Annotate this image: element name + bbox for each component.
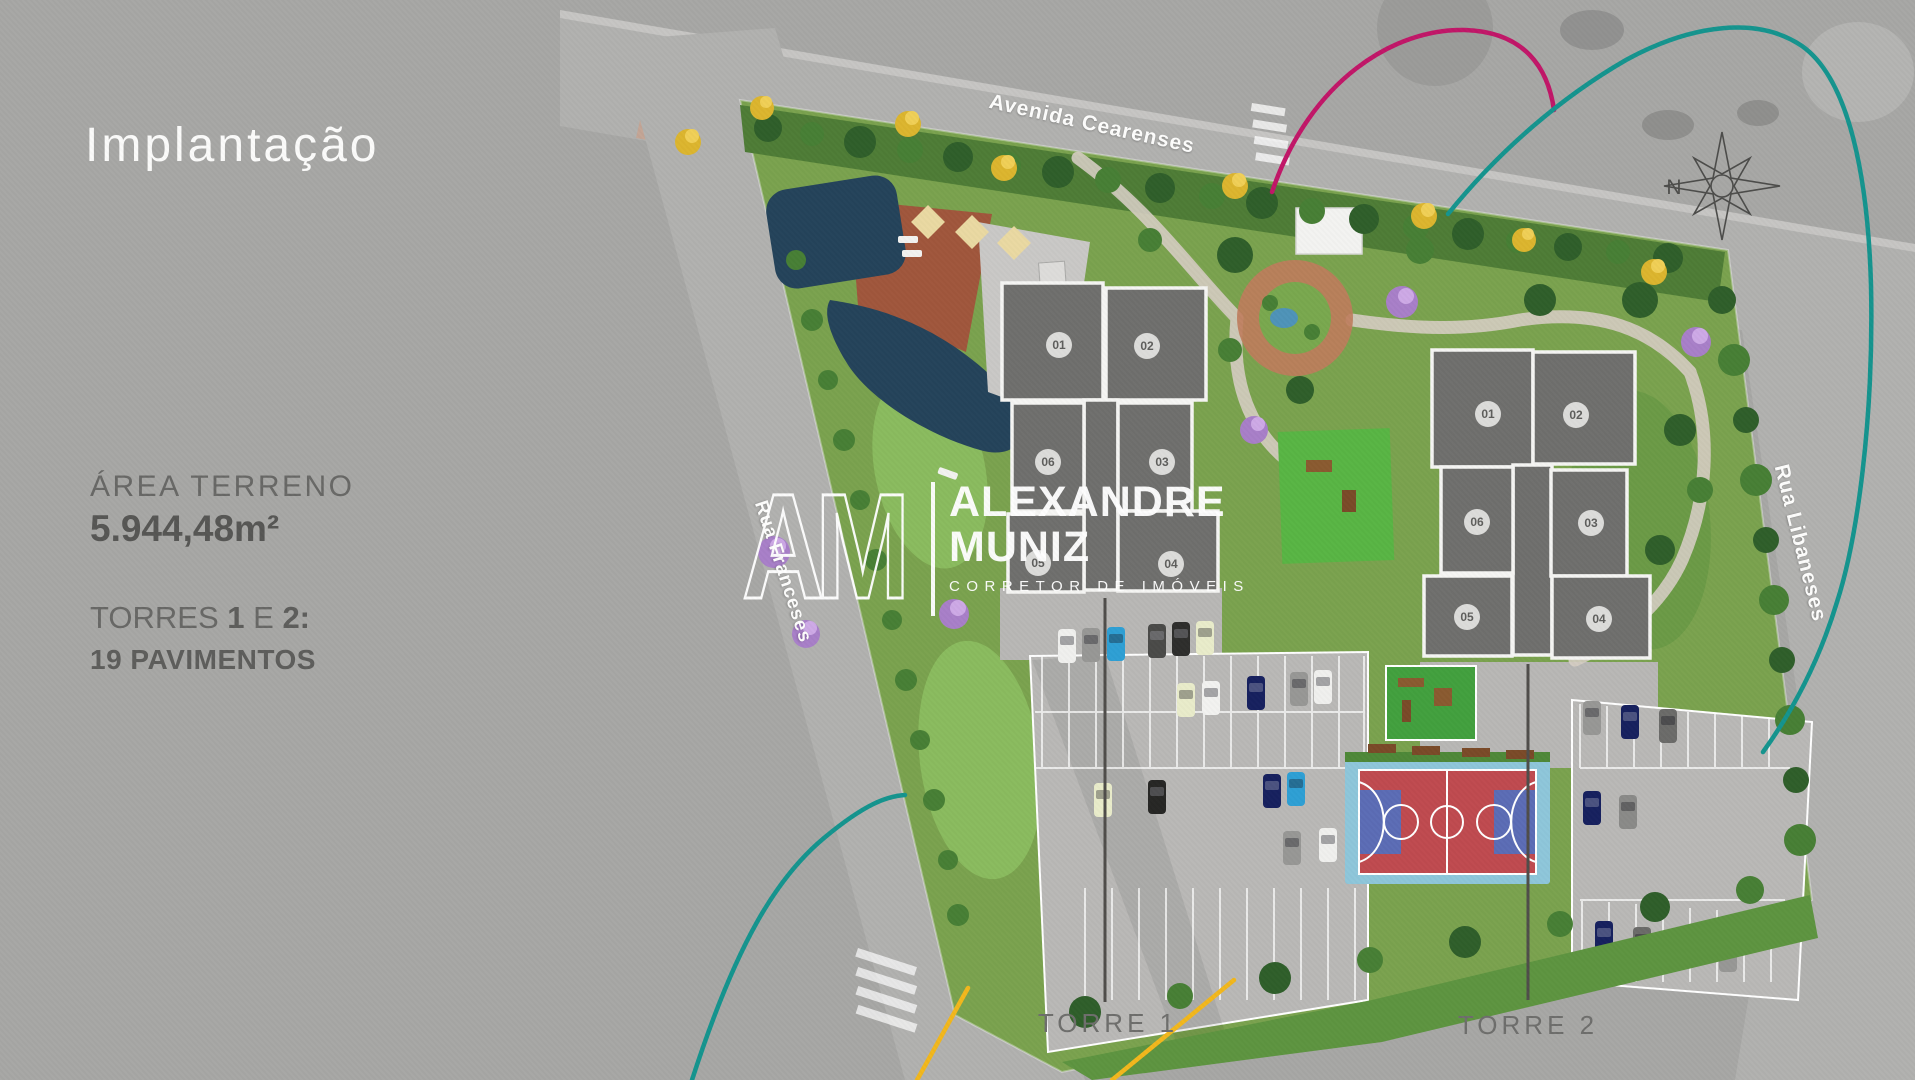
torre-2-label: TORRE 2 <box>1438 1010 1618 1041</box>
unit-badge: 02 <box>1569 408 1583 422</box>
water-feature <box>1270 308 1298 328</box>
unit-badge: 01 <box>1481 407 1495 421</box>
tower-number-1: 1 <box>227 600 244 635</box>
unit-badge: 01 <box>1052 338 1066 352</box>
compass-n-label: N <box>1666 176 1681 199</box>
lawn <box>1278 428 1395 564</box>
brand-tagline: CORRETOR DE IMÓVEIS <box>949 578 1250 595</box>
brand-name-line2: MUNIZ <box>949 525 1250 570</box>
towers-info-line: TORRES 1 E 2: <box>90 600 310 636</box>
pavimentos-line: 19 PAVIMENTOS <box>90 644 316 676</box>
unit-badge: 03 <box>1155 455 1169 469</box>
unit-badge: 03 <box>1584 516 1598 530</box>
area-value: 5.944,48m² <box>90 508 279 550</box>
watermark: AM ALEXANDRE MUNIZ CORRETOR DE IMÓVEIS <box>742 480 1250 622</box>
unit-badge: 06 <box>1470 515 1484 529</box>
page-background: 01 02 06 03 05 04 01 02 06 03 05 04 N Im… <box>0 0 1915 1080</box>
basketball-court <box>1345 744 1550 884</box>
tower-number-2: 2: <box>282 600 310 635</box>
pool-upper <box>763 172 909 291</box>
unit-badge: 06 <box>1041 455 1055 469</box>
unit-badge: 04 <box>1592 612 1606 626</box>
area-label: ÁREA TERRENO <box>90 470 355 504</box>
brand-name-line1: ALEXANDRE <box>949 480 1250 525</box>
brand-initials-logo: AM <box>742 480 917 622</box>
torre-1-label: TORRE 1 <box>1018 1008 1198 1039</box>
unit-badge: 05 <box>1460 610 1474 624</box>
brand-initials: AM <box>742 480 903 622</box>
unit-badge: 02 <box>1140 339 1154 353</box>
towers-conjunction: E <box>253 600 274 635</box>
playground <box>1386 666 1476 740</box>
towers-word: TORRES <box>90 600 219 635</box>
page-title: Implantação <box>85 118 380 173</box>
watermark-divider <box>931 482 935 616</box>
